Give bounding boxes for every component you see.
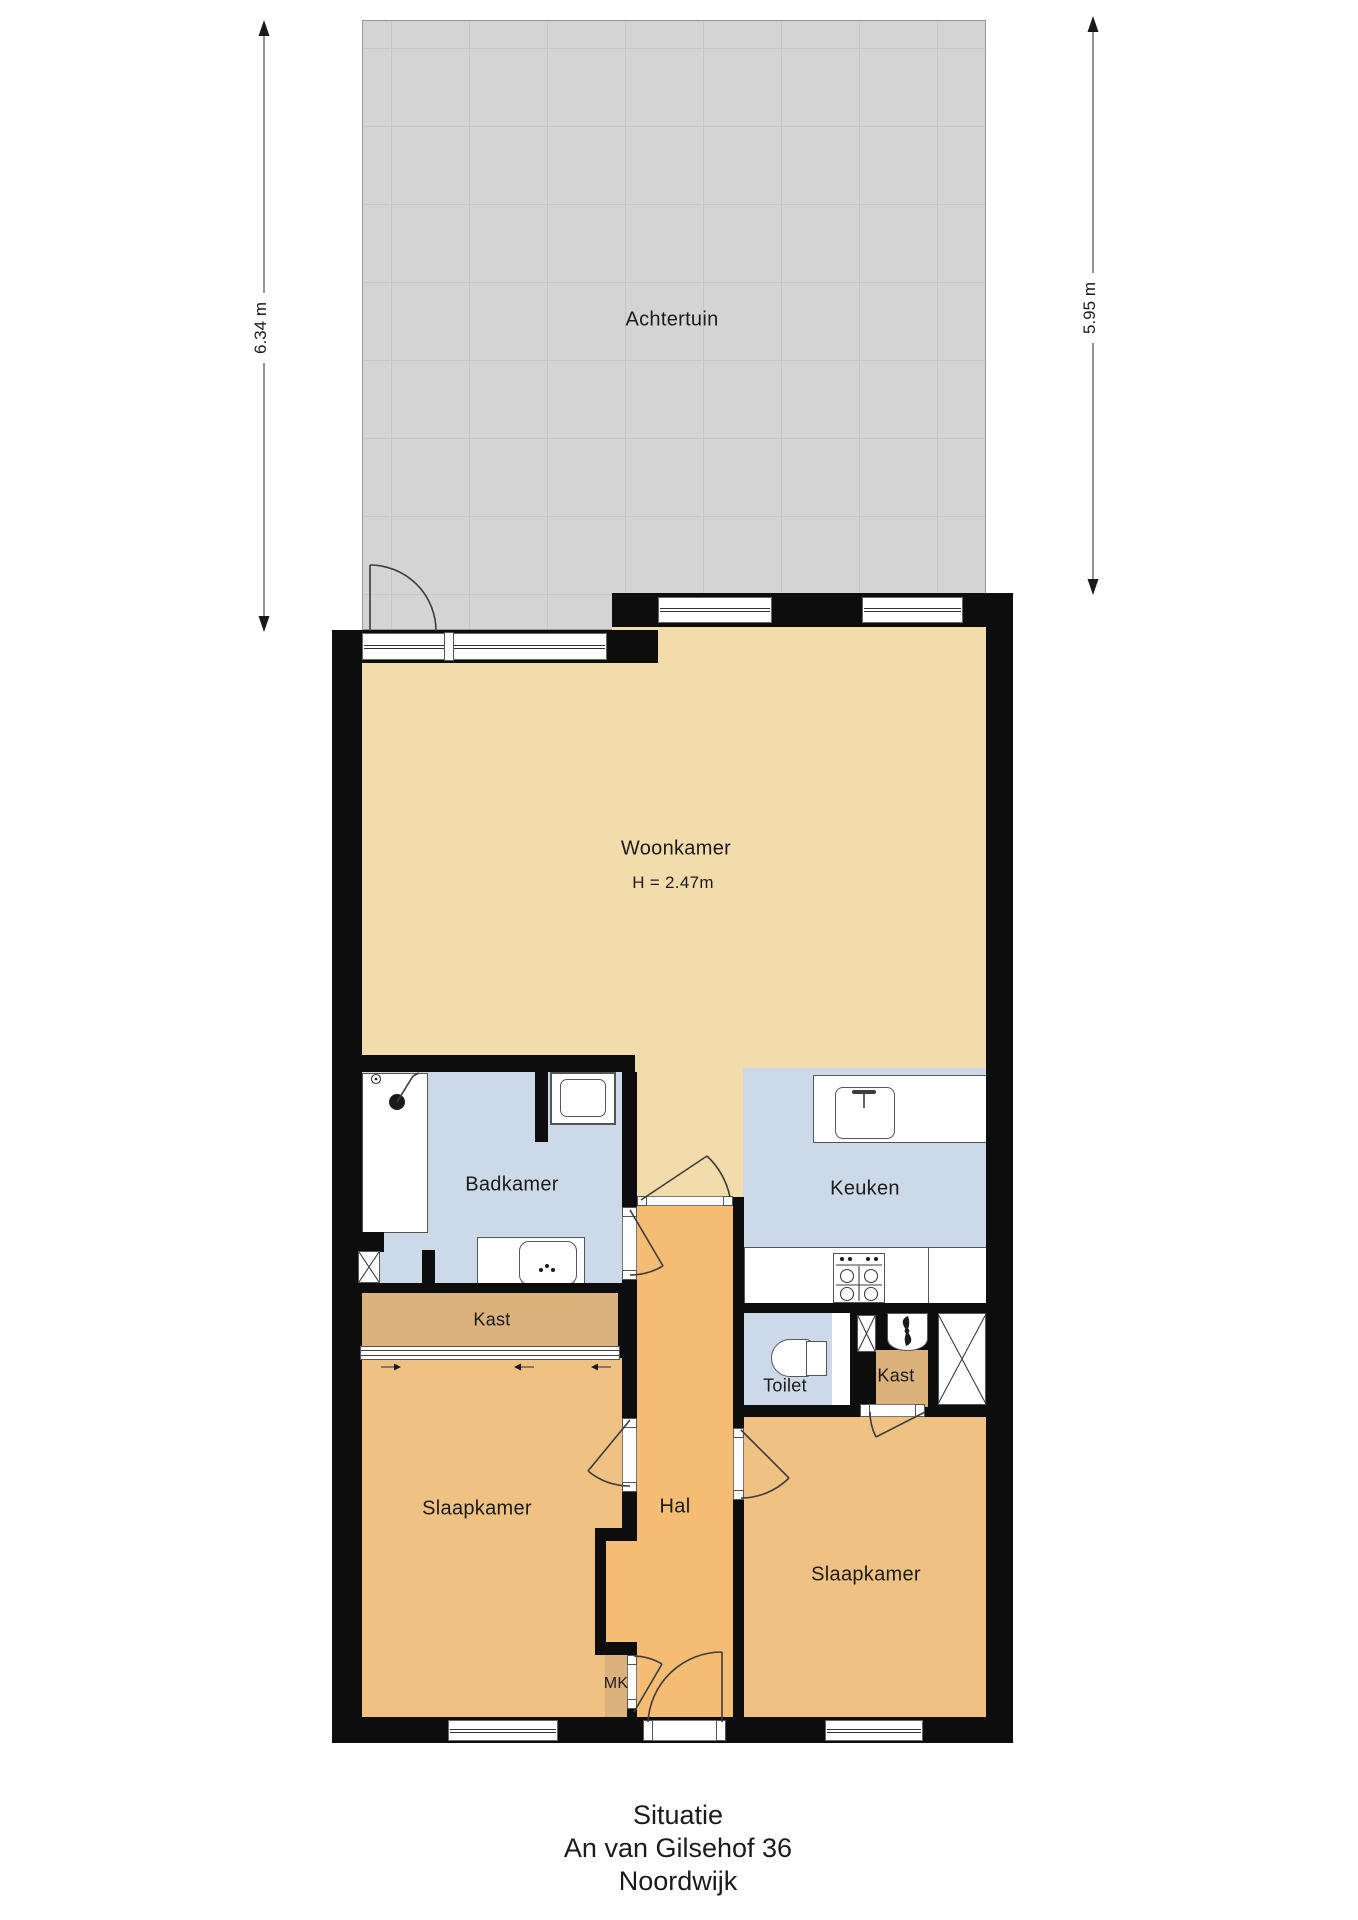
sliding-door-kast-left — [360, 1346, 620, 1360]
title-block: Situatie An van Gilsehof 36 Noordwijk — [564, 1799, 792, 1898]
wall-outer-right — [986, 593, 1013, 1743]
label-mk: MK — [604, 1675, 629, 1693]
dimension-right: 5.95 m — [1077, 273, 1103, 343]
floorplan-canvas: Achtertuin Woonkamer H = 2.47m Badkamer … — [0, 0, 1358, 1920]
label-keuken: Keuken — [830, 1178, 900, 1201]
label-achtertuin: Achtertuin — [625, 309, 718, 332]
floor-woonkamer-corridor — [635, 1055, 743, 1197]
washing-machine-door — [560, 1079, 606, 1117]
window-top-a — [658, 597, 772, 623]
shaft-box-large — [938, 1313, 986, 1405]
front-door-opening — [643, 1720, 726, 1741]
wall-keuken-bottom — [744, 1303, 986, 1313]
label-slaapkamer-left: Slaapkamer — [422, 1498, 532, 1521]
wall-niche-left — [595, 1540, 606, 1655]
wall-hal-east — [733, 1197, 744, 1430]
counter-divider — [928, 1247, 929, 1305]
door-opening-slaapkamer-left — [622, 1418, 637, 1492]
label-woonkamer: Woonkamer — [621, 838, 731, 861]
door-opening-kast-right — [860, 1404, 925, 1417]
wall-outer-left — [332, 632, 362, 1743]
window-garden-facade — [362, 633, 607, 660]
floor-hal-nook — [605, 1540, 637, 1642]
wall-stub-badkamer — [535, 1072, 548, 1142]
floor-hal — [637, 1205, 733, 1717]
title-line-3: Noordwijk — [564, 1865, 792, 1898]
wall-hal-west — [622, 1072, 637, 1209]
door-opening-badkamer — [622, 1207, 637, 1280]
washing-machine — [550, 1072, 616, 1125]
label-kast-right: Kast — [877, 1366, 914, 1387]
label-toilet: Toilet — [763, 1376, 807, 1397]
label-woonkamer-height: H = 2.47m — [632, 873, 714, 893]
wall-kast-right-east — [928, 1313, 938, 1405]
floor-slaapkamer-left — [358, 1358, 622, 1717]
toilet-cistern — [806, 1341, 827, 1376]
title-line-1: Situatie — [564, 1799, 792, 1832]
wall-hal-west — [622, 1490, 637, 1530]
label-kast-left: Kast — [473, 1310, 510, 1331]
label-slaapkamer-right: Slaapkamer — [811, 1564, 921, 1587]
title-line-2: An van Gilsehof 36 — [564, 1832, 792, 1865]
shaft-box-small — [857, 1315, 876, 1352]
wall-hal-west — [622, 1358, 637, 1420]
mechanical-ventilation-box — [887, 1313, 928, 1351]
wall-badkamer-top — [358, 1055, 635, 1072]
bathroom-sink-basin — [519, 1241, 577, 1285]
wall-hal-east — [733, 1498, 744, 1719]
floor-woonkamer — [358, 663, 612, 1055]
label-badkamer: Badkamer — [465, 1174, 559, 1197]
duct-strip — [832, 1313, 850, 1405]
window-bottom-right — [825, 1720, 923, 1741]
window-top-b — [862, 597, 963, 623]
window-mullion — [444, 632, 454, 661]
label-hal: Hal — [660, 1496, 691, 1519]
wall-badkamer-bottom — [358, 1283, 622, 1293]
kitchen-sink — [835, 1087, 895, 1139]
shower — [362, 1073, 428, 1233]
door-opening-slaapkamer-right — [733, 1428, 744, 1500]
dimension-left: 6.34 m — [248, 293, 274, 363]
stove — [833, 1253, 885, 1303]
wall-stub-sink — [422, 1250, 435, 1285]
window-bottom-left — [448, 1720, 558, 1741]
shaft-box-badkamer — [358, 1251, 380, 1283]
door-opening-woonkamer-hal — [637, 1196, 733, 1206]
wall-hal-west — [622, 1278, 637, 1360]
